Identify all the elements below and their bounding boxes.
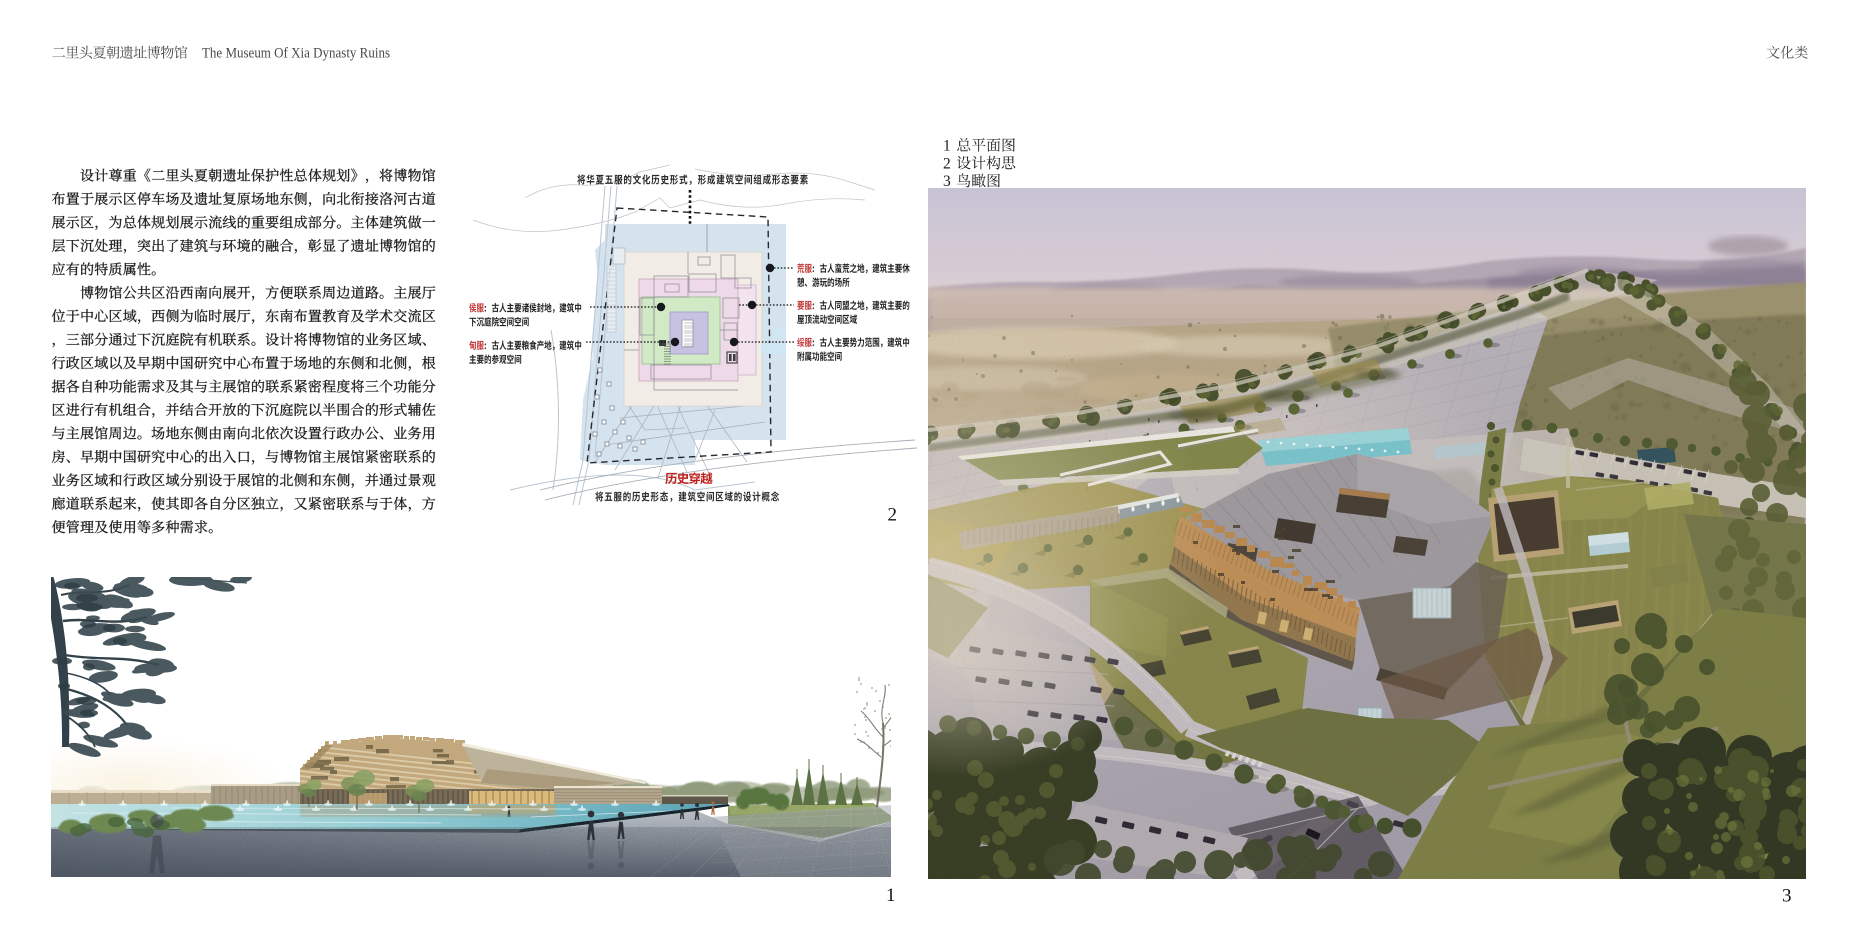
svg-text:1: 1 xyxy=(886,885,896,906)
svg-text:3: 3 xyxy=(1782,886,1792,907)
svg-text:2: 2 xyxy=(888,505,898,526)
